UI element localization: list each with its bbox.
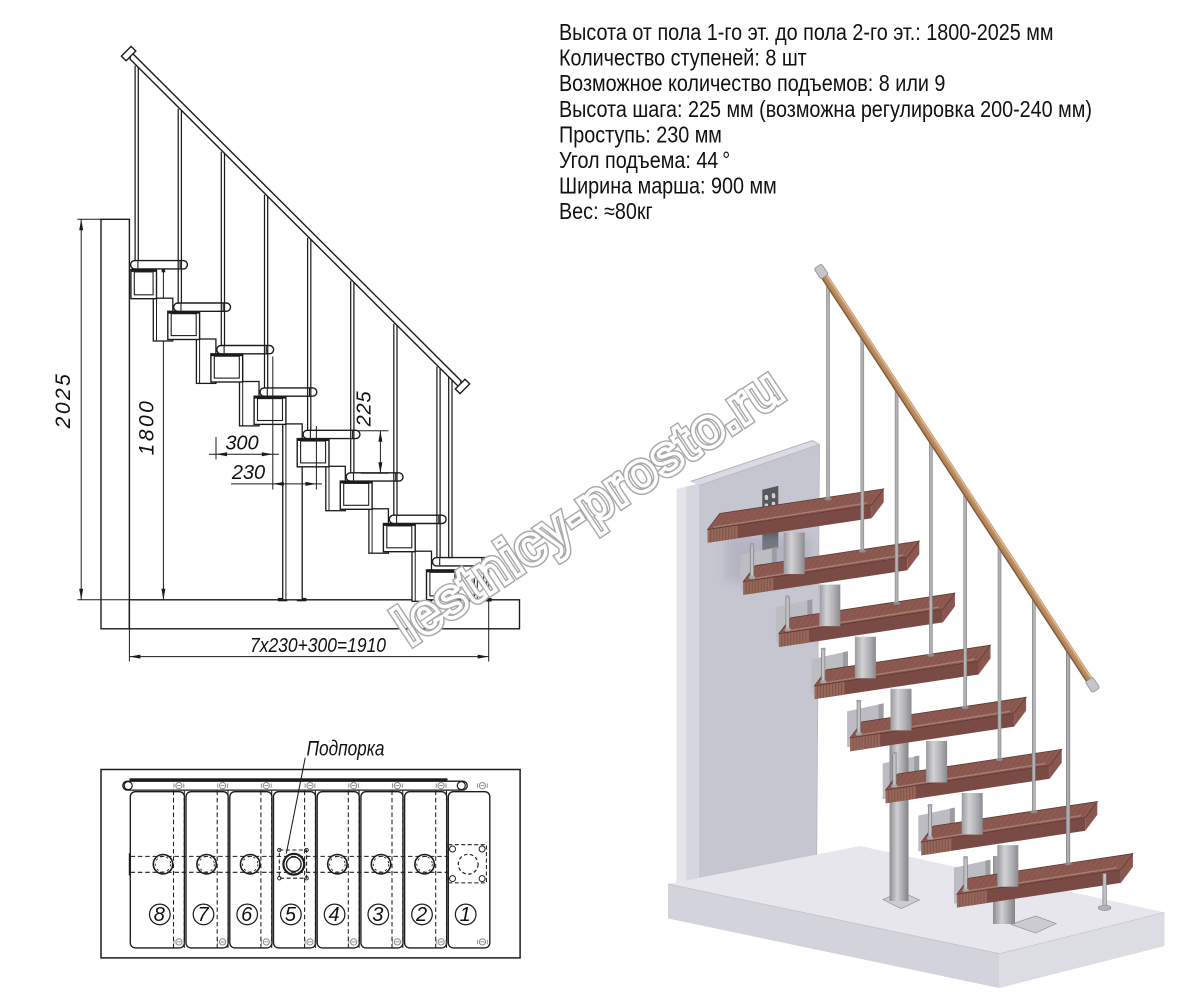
svg-text:Высота от пола 1-го эт. до пол: Высота от пола 1-го эт. до пола 2-го эт.… <box>559 20 1053 46</box>
svg-text:Количество ступеней: 8 шт: Количество ступеней: 8 шт <box>559 45 807 71</box>
svg-text:1: 1 <box>460 904 471 926</box>
svg-text:Проступь: 230 мм: Проступь: 230 мм <box>559 122 722 148</box>
svg-text:Угол подъема: 44 °: Угол подъема: 44 ° <box>559 148 730 174</box>
svg-text:225: 225 <box>354 391 376 428</box>
svg-text:230: 230 <box>231 462 265 484</box>
svg-text:8: 8 <box>154 904 165 926</box>
svg-text:2025: 2025 <box>52 372 75 430</box>
svg-text:2: 2 <box>415 904 427 926</box>
svg-text:7x230+300=1910: 7x230+300=1910 <box>250 635 386 657</box>
svg-text:Подпорка: Подпорка <box>307 738 385 761</box>
svg-text:7: 7 <box>197 904 209 926</box>
svg-text:Возможное количество подъемов:: Возможное количество подъемов: 8 или 9 <box>559 71 945 97</box>
svg-text:4: 4 <box>329 904 340 926</box>
svg-text:6: 6 <box>241 904 253 926</box>
svg-text:Ширина марша: 900 мм: Ширина марша: 900 мм <box>559 173 777 199</box>
svg-text:Вес: ≈80кг: Вес: ≈80кг <box>559 199 653 225</box>
svg-text:3: 3 <box>372 904 383 926</box>
svg-text:Высота шага: 225 мм (возможна: Высота шага: 225 мм (возможна регулировк… <box>559 96 1092 122</box>
svg-text:300: 300 <box>225 433 258 455</box>
svg-text:5: 5 <box>285 904 297 926</box>
svg-text:1800: 1800 <box>136 399 159 456</box>
